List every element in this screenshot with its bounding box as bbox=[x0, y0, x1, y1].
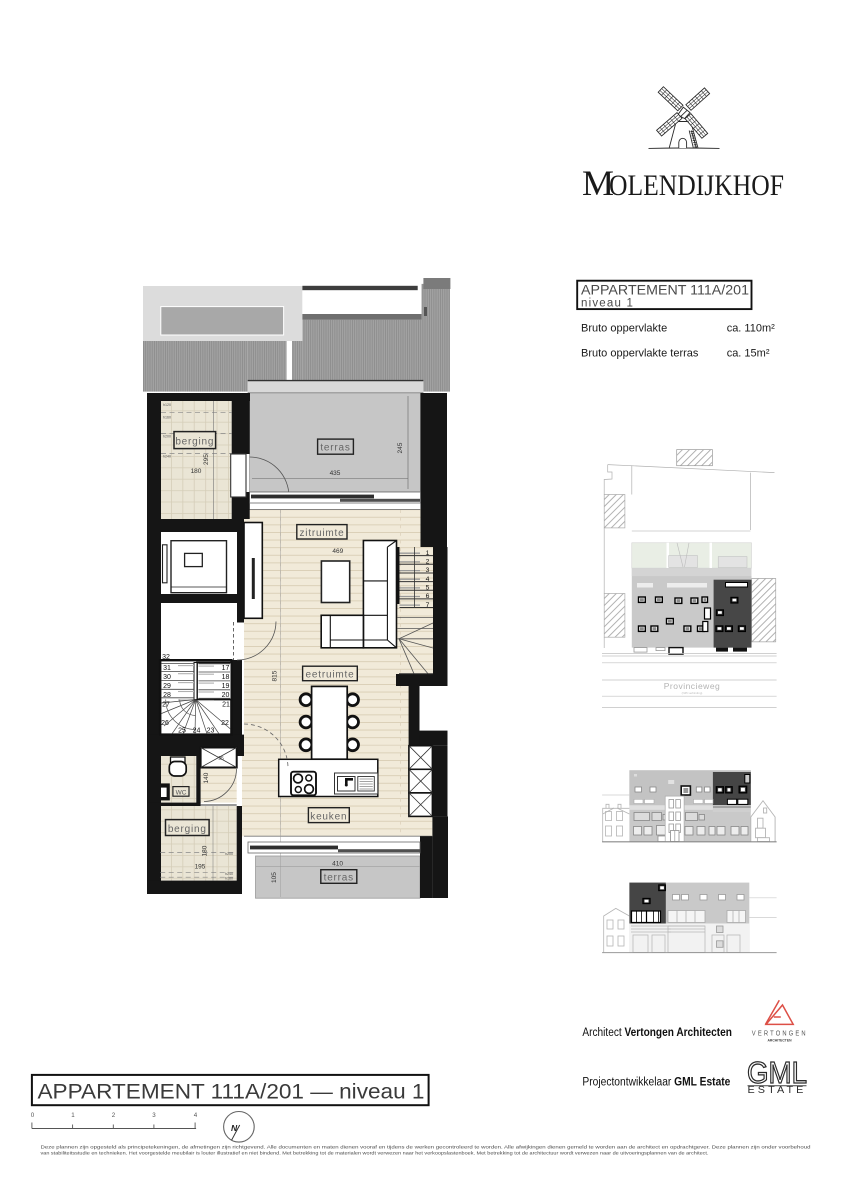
svg-text:1: 1 bbox=[71, 1112, 75, 1119]
svg-text:APPARTEMENT 111A/201 — niveau: APPARTEMENT 111A/201 — niveau 1 bbox=[38, 1080, 425, 1104]
svg-text:Projectontwikkelaar GML Estate: Projectontwikkelaar GML Estate bbox=[582, 1077, 730, 1089]
svg-text:23: 23 bbox=[207, 728, 215, 735]
svg-text:4: 4 bbox=[426, 576, 430, 583]
svg-text:eetruimte: eetruimte bbox=[306, 670, 355, 681]
svg-text:180: 180 bbox=[202, 845, 209, 856]
svg-text:180: 180 bbox=[191, 468, 202, 475]
svg-text:410: 410 bbox=[332, 860, 343, 867]
svg-text:berging: berging bbox=[168, 824, 207, 835]
svg-text:24: 24 bbox=[193, 728, 201, 735]
svg-text:ESTATE: ESTATE bbox=[748, 1084, 807, 1096]
svg-text:245: 245 bbox=[397, 442, 404, 453]
svg-text:29: 29 bbox=[163, 683, 171, 690]
svg-text:4: 4 bbox=[194, 1112, 198, 1119]
svg-text:3: 3 bbox=[152, 1112, 156, 1119]
svg-text:berging: berging bbox=[175, 436, 214, 447]
svg-text:7: 7 bbox=[426, 602, 430, 609]
svg-text:h180: h180 bbox=[225, 877, 233, 881]
svg-text:zitruimte: zitruimte bbox=[300, 528, 345, 539]
svg-text:VERTONGEN: VERTONGEN bbox=[752, 1031, 808, 1038]
svg-text:105: 105 bbox=[271, 872, 278, 883]
svg-text:1: 1 bbox=[426, 550, 430, 557]
svg-text:30: 30 bbox=[163, 674, 171, 681]
svg-text:20: 20 bbox=[222, 692, 230, 699]
svg-text:van stabiliteitsstudie en tech: van stabiliteitsstudie en technieken. He… bbox=[41, 1150, 709, 1155]
svg-text:140: 140 bbox=[203, 772, 210, 783]
svg-text:ARCHITECTEN: ARCHITECTEN bbox=[768, 1038, 793, 1042]
svg-text:3: 3 bbox=[426, 567, 430, 574]
svg-text:22: 22 bbox=[221, 720, 229, 727]
svg-text:2: 2 bbox=[112, 1112, 116, 1119]
svg-text:Deze plannen zijn opgesteld al: Deze plannen zijn opgesteld als principe… bbox=[41, 1144, 812, 1149]
svg-text:18: 18 bbox=[222, 674, 230, 681]
svg-text:keuken: keuken bbox=[310, 811, 347, 822]
svg-text:25: 25 bbox=[178, 728, 186, 735]
svg-text:APPARTEMENT 111A/201: APPARTEMENT 111A/201 bbox=[581, 283, 749, 298]
svg-text:Architect Vertongen Architecte: Architect Vertongen Architecten bbox=[582, 1027, 732, 1039]
svg-text:h240: h240 bbox=[225, 872, 233, 876]
svg-text:2: 2 bbox=[426, 559, 430, 566]
svg-text:h200: h200 bbox=[163, 435, 171, 439]
svg-text:32: 32 bbox=[162, 654, 170, 661]
svg-text:Bruto oppervlakte terras: Bruto oppervlakte terras bbox=[581, 348, 699, 360]
svg-text:435: 435 bbox=[330, 470, 341, 477]
svg-text:95: 95 bbox=[218, 756, 224, 762]
svg-text:ca. 15m²: ca. 15m² bbox=[727, 348, 770, 360]
svg-text:21: 21 bbox=[222, 702, 230, 709]
svg-text:295: 295 bbox=[203, 454, 210, 465]
svg-text:h120: h120 bbox=[163, 403, 171, 407]
svg-text:WC: WC bbox=[176, 789, 187, 796]
svg-text:6: 6 bbox=[426, 593, 430, 600]
svg-text:terras: terras bbox=[324, 872, 354, 883]
svg-text:5: 5 bbox=[426, 585, 430, 592]
svg-text:Provincieweg: Provincieweg bbox=[664, 681, 721, 691]
svg-text:28: 28 bbox=[163, 692, 171, 699]
svg-text:terras: terras bbox=[320, 443, 350, 454]
svg-text:19: 19 bbox=[222, 683, 230, 690]
svg-text:(N45 verbinding): (N45 verbinding) bbox=[682, 691, 703, 695]
svg-text:27: 27 bbox=[162, 702, 170, 709]
svg-text:26: 26 bbox=[161, 720, 169, 727]
svg-text:niveau 1: niveau 1 bbox=[581, 298, 634, 310]
svg-text:815: 815 bbox=[272, 670, 279, 681]
svg-text:OLENDIJKHOF: OLENDIJKHOF bbox=[609, 169, 784, 202]
svg-text:h240: h240 bbox=[163, 455, 171, 459]
svg-text:h160: h160 bbox=[163, 416, 171, 420]
svg-text:0: 0 bbox=[31, 1112, 35, 1119]
svg-text:469: 469 bbox=[332, 548, 343, 555]
svg-text:Bruto oppervlakte: Bruto oppervlakte bbox=[581, 323, 667, 335]
svg-text:195: 195 bbox=[195, 864, 206, 871]
svg-text:N: N bbox=[231, 1123, 238, 1133]
svg-text:17: 17 bbox=[222, 665, 230, 672]
svg-text:31: 31 bbox=[163, 665, 171, 672]
svg-text:ca. 110m²: ca. 110m² bbox=[727, 323, 775, 335]
svg-text:h200: h200 bbox=[225, 852, 233, 856]
